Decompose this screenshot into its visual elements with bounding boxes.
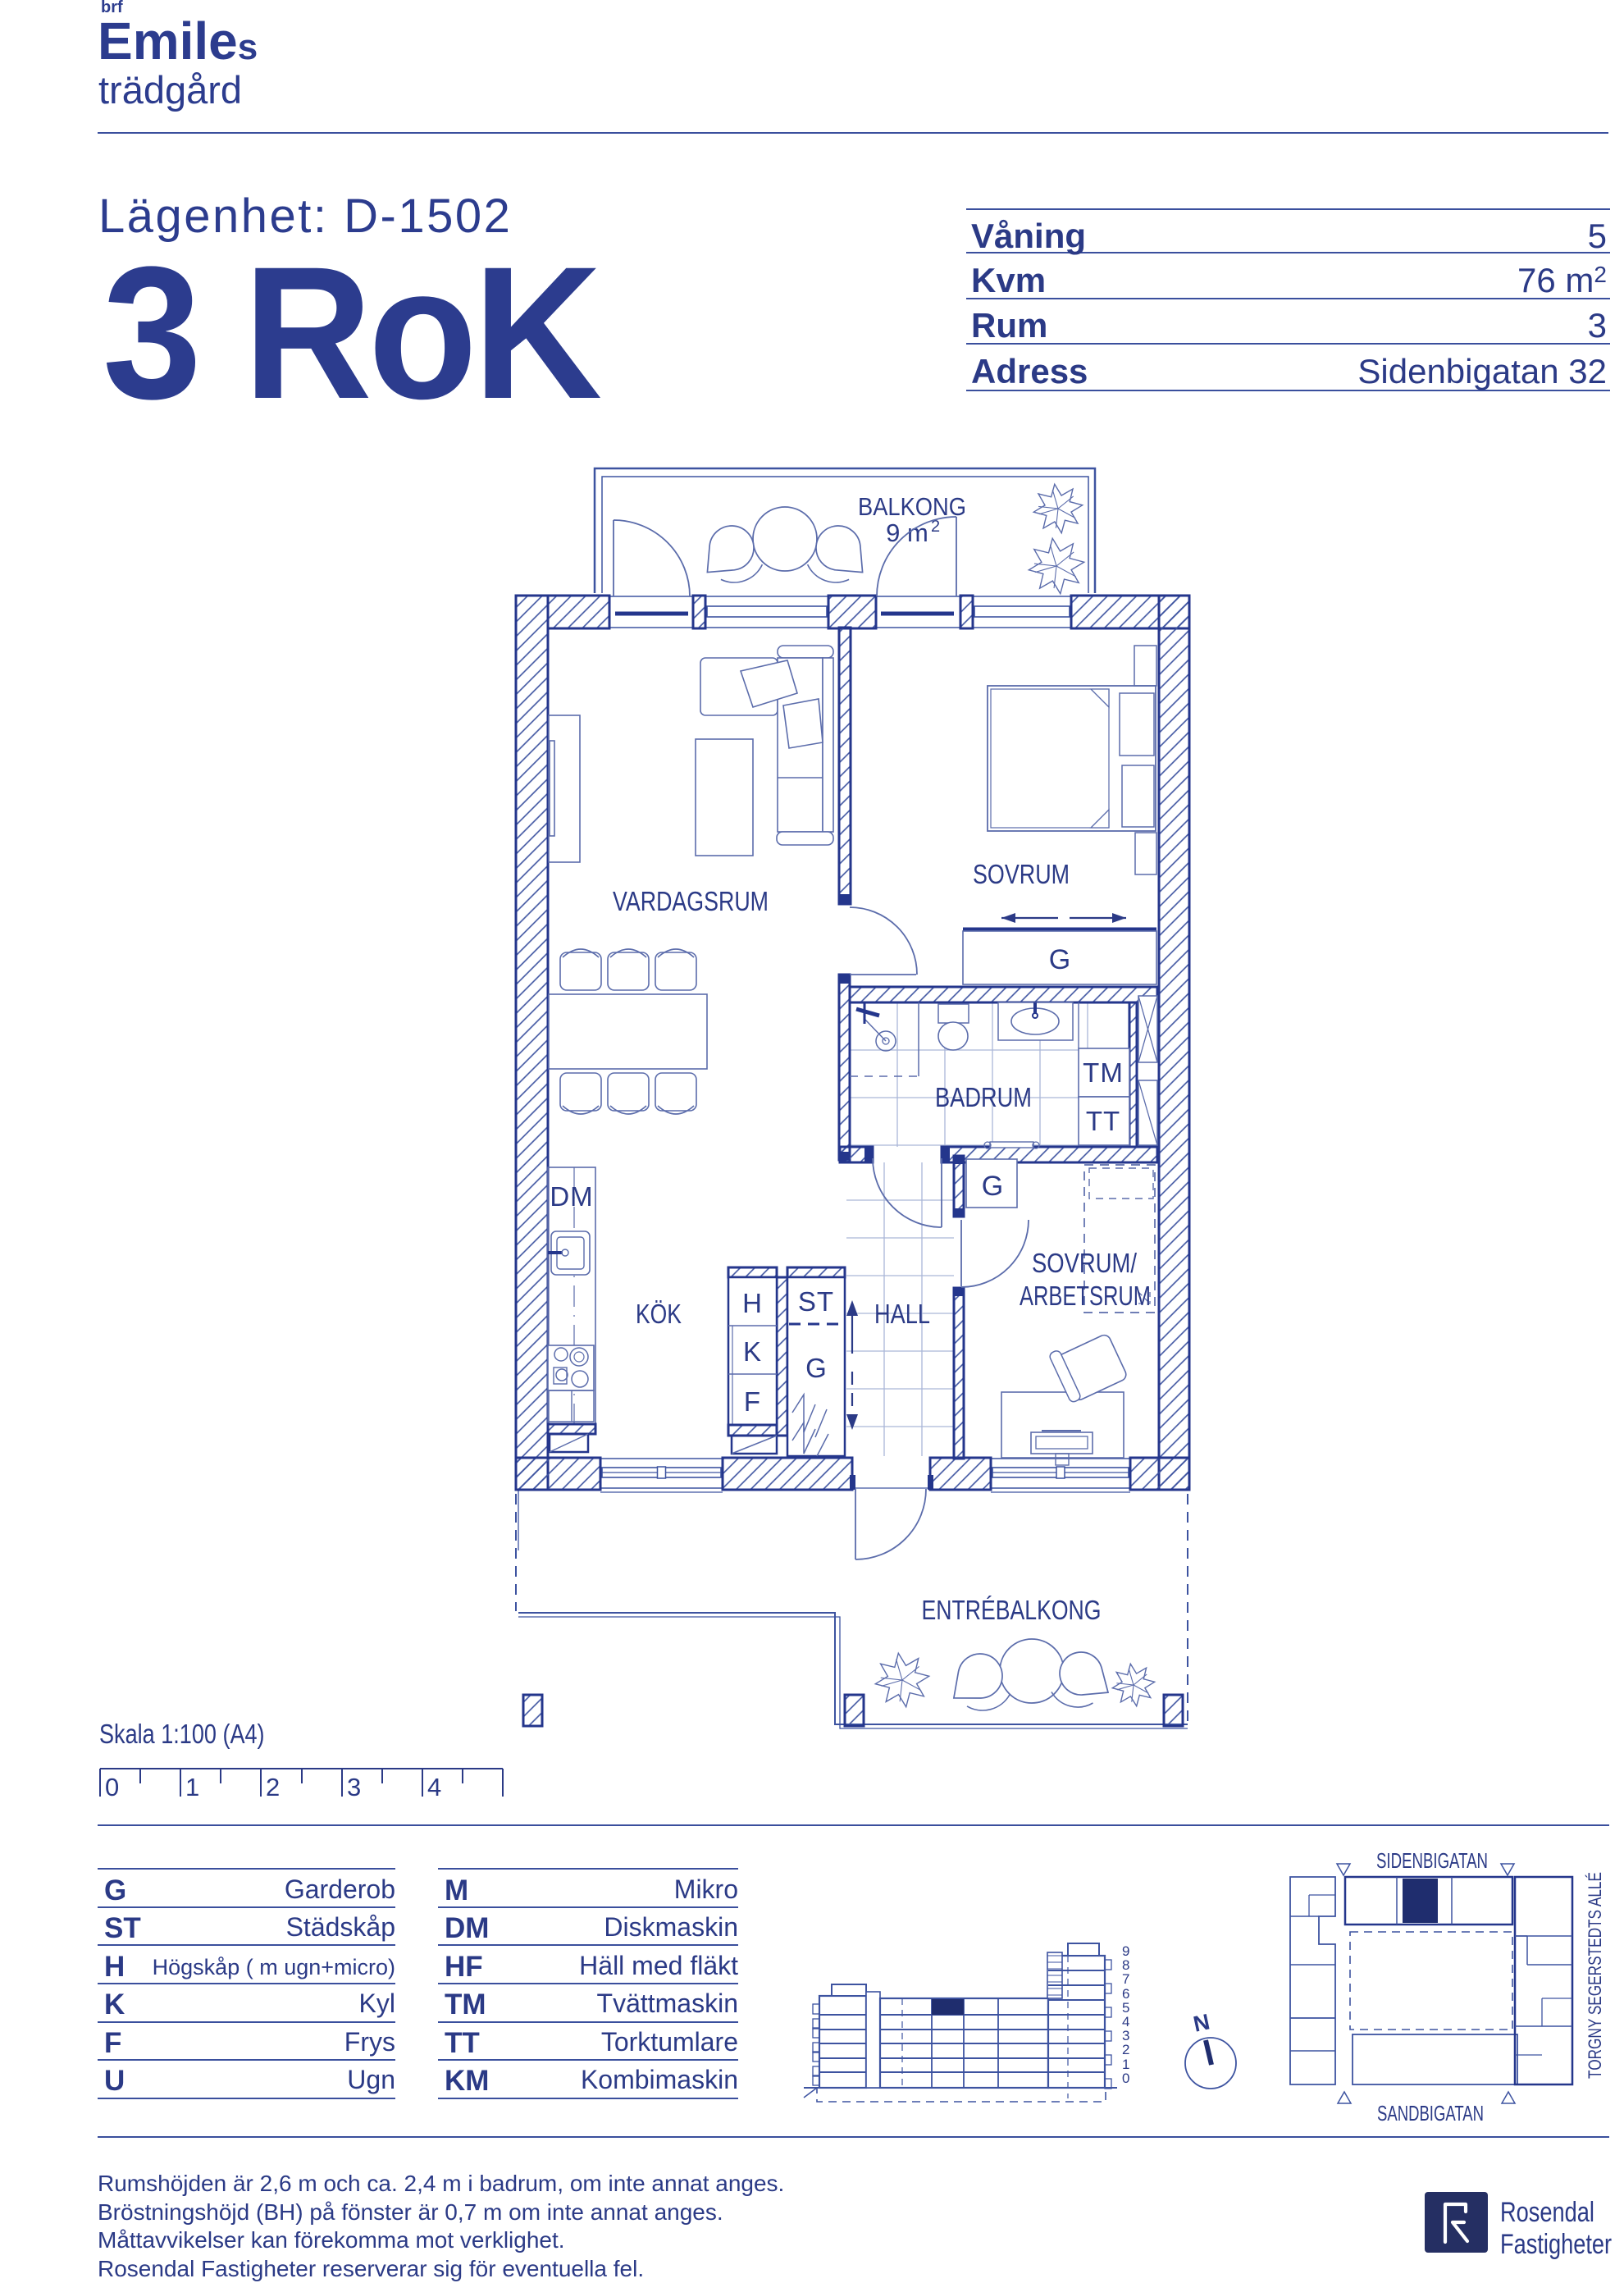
svg-text:SOVRUM: SOVRUM xyxy=(973,859,1070,889)
svg-text:TT: TT xyxy=(1086,1106,1120,1136)
svg-text:F: F xyxy=(744,1386,760,1417)
svg-text:HALL: HALL xyxy=(874,1299,930,1329)
svg-text:VARDAGSRUM: VARDAGSRUM xyxy=(613,886,769,916)
svg-text:0: 0 xyxy=(1122,2071,1129,2086)
svg-text:G: G xyxy=(805,1353,827,1383)
svg-text:2: 2 xyxy=(1122,2042,1129,2057)
svg-text:4: 4 xyxy=(427,1773,441,1801)
svg-text:G: G xyxy=(982,1171,1003,1202)
svg-text:G: G xyxy=(1049,944,1070,975)
svg-text:9 m: 9 m xyxy=(886,518,928,547)
svg-text:1: 1 xyxy=(185,1773,199,1801)
svg-text:TORGNY SEGERSTEDTS ALLÉ: TORGNY SEGERSTEDTS ALLÉ xyxy=(1585,1872,1605,2079)
svg-text:DM: DM xyxy=(550,1181,593,1212)
svg-text:SIDENBIGATAN: SIDENBIGATAN xyxy=(1376,1848,1488,1873)
svg-text:0: 0 xyxy=(105,1773,119,1801)
svg-text:H: H xyxy=(742,1288,762,1318)
svg-text:7: 7 xyxy=(1122,1971,1129,1987)
svg-text:3: 3 xyxy=(347,1773,361,1801)
svg-text:ARBETSRUM: ARBETSRUM xyxy=(1020,1281,1151,1311)
svg-text:ENTRÉBALKONG: ENTRÉBALKONG xyxy=(922,1595,1102,1625)
svg-text:SANDBIGATAN: SANDBIGATAN xyxy=(1377,2101,1484,2125)
svg-text:2: 2 xyxy=(266,1773,280,1801)
svg-text:ST: ST xyxy=(798,1286,834,1317)
svg-text:BADRUM: BADRUM xyxy=(935,1082,1032,1112)
svg-text:N: N xyxy=(1191,2009,1211,2036)
svg-text:KÖK: KÖK xyxy=(636,1299,682,1329)
svg-text:K: K xyxy=(743,1336,761,1367)
svg-text:SOVRUM/: SOVRUM/ xyxy=(1032,1248,1138,1278)
svg-text:TM: TM xyxy=(1083,1057,1124,1088)
